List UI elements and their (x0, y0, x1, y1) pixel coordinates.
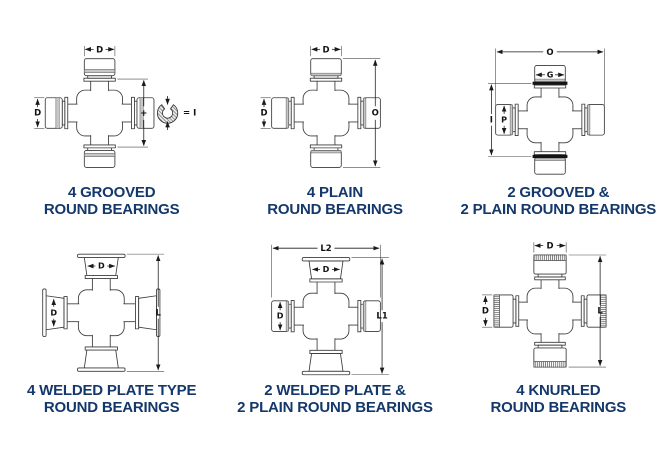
dim-label-top-width: D (323, 45, 330, 55)
caption-4-plain: 4 PLAIN ROUND BEARINGS (267, 184, 403, 219)
panel-4-grooved: D D + = I 4 GROOVED ROUND BEARINGS (0, 6, 223, 228)
u-joint-drawing (494, 255, 606, 367)
diagram-4-grooved-round-bearings: D D + = I (18, 40, 205, 181)
snap-ring-icon: = I (158, 96, 197, 130)
u-joint-drawing (43, 254, 160, 371)
u-joint-drawing (495, 65, 604, 174)
dim-label-top-width: D (546, 242, 553, 252)
caption-line: 4 WELDED PLATE TYPE (27, 382, 196, 399)
u-joint-drawing (272, 258, 381, 375)
diagram-4-welded-plate-round-bearings: D D L (18, 238, 205, 379)
panel-2-grooved-2-plain: O G I P 2 GROOVED & 2 PLAIN ROUND BEARIN… (447, 6, 670, 228)
diagram-4-knurled-round-bearings: D D L (465, 238, 652, 379)
dim-label-length: L1 (377, 312, 388, 322)
caption-line: 2 WELDED PLATE & (237, 382, 433, 399)
dim-label-left-height: D (34, 109, 41, 119)
caption-line: ROUND BEARINGS (491, 399, 627, 416)
dim-label-cup-height: D (277, 312, 284, 321)
caption-2-welded-2-plain: 2 WELDED PLATE & 2 PLAIN ROUND BEARINGS (237, 382, 433, 417)
dim-label-length: L (156, 308, 162, 318)
dim-label-groove-span: I (490, 115, 493, 125)
caption-line: 2 PLAIN ROUND BEARINGS (461, 201, 657, 218)
caption-line: 2 PLAIN ROUND BEARINGS (237, 399, 433, 416)
caption-line: ROUND BEARINGS (267, 201, 403, 218)
caption-line: 4 PLAIN (267, 184, 403, 201)
diagram-2-grooved-2-plain-round-bearings: O G I P (465, 40, 652, 181)
panel-4-welded-plate: D D L 4 WELDED PLATE TYPE ROUND BEARINGS (0, 228, 223, 450)
dim-left-height: D (482, 295, 492, 327)
dim-label-cup-width: G (547, 71, 554, 80)
bearing-types-reference-sheet: D D + = I 4 GROOVED ROUND BEARINGS (0, 0, 670, 450)
dim-left-height: D (261, 98, 271, 129)
caption-4-welded-plate: 4 WELDED PLATE TYPE ROUND BEARINGS (27, 382, 196, 417)
u-joint-drawing (272, 59, 381, 168)
dim-label-overall-width: L2 (321, 244, 332, 254)
caption-line: 4 GROOVED (44, 184, 180, 201)
dim-top-width: D (534, 242, 566, 253)
dim-label-cup-inner: P (501, 115, 507, 124)
dim-label-left-height: D (482, 307, 489, 317)
dim-label-left-height: D (261, 109, 268, 119)
caption-line: 2 GROOVED & (461, 184, 657, 201)
caption-line: ROUND BEARINGS (44, 201, 180, 218)
dim-label-cup-height: D (51, 308, 58, 317)
caption-line: ROUND BEARINGS (27, 399, 196, 416)
diagram-2-welded-plate-2-plain-round-bearings: L2 D D L1 (241, 238, 428, 379)
caption-line: 4 KNURLED (491, 382, 627, 399)
dim-left-height: D (34, 98, 44, 129)
dim-top-width: D (311, 45, 342, 56)
caption-2-grooved-2-plain: 2 GROOVED & 2 PLAIN ROUND BEARINGS (461, 184, 657, 219)
dim-label-plus: + (140, 109, 147, 119)
dim-label-length: L (597, 307, 603, 317)
dim-label-top-width: D (96, 45, 103, 55)
caption-4-grooved: 4 GROOVED ROUND BEARINGS (44, 184, 180, 219)
dim-label-overall-height: O (372, 109, 379, 119)
panel-4-plain: D D O 4 PLAIN ROUND BEARINGS (223, 6, 446, 228)
dim-top-width: D (84, 45, 115, 56)
dim-label-overall-width: O (546, 48, 553, 58)
panel-4-knurled: D D L 4 KNURLED ROUND BEARINGS (447, 228, 670, 450)
dim-label-cup-width: D (323, 265, 330, 274)
diagram-4-plain-round-bearings: D D O (241, 40, 428, 181)
u-joint-drawing (45, 59, 154, 168)
dim-label-ring-equals: = I (183, 109, 196, 119)
dim-label-cup-width: D (98, 262, 105, 271)
panel-2-welded-2-plain: L2 D D L1 2 WELDED PLATE & 2 PLAIN ROUND… (223, 228, 446, 450)
caption-4-knurled: 4 KNURLED ROUND BEARINGS (491, 382, 627, 417)
